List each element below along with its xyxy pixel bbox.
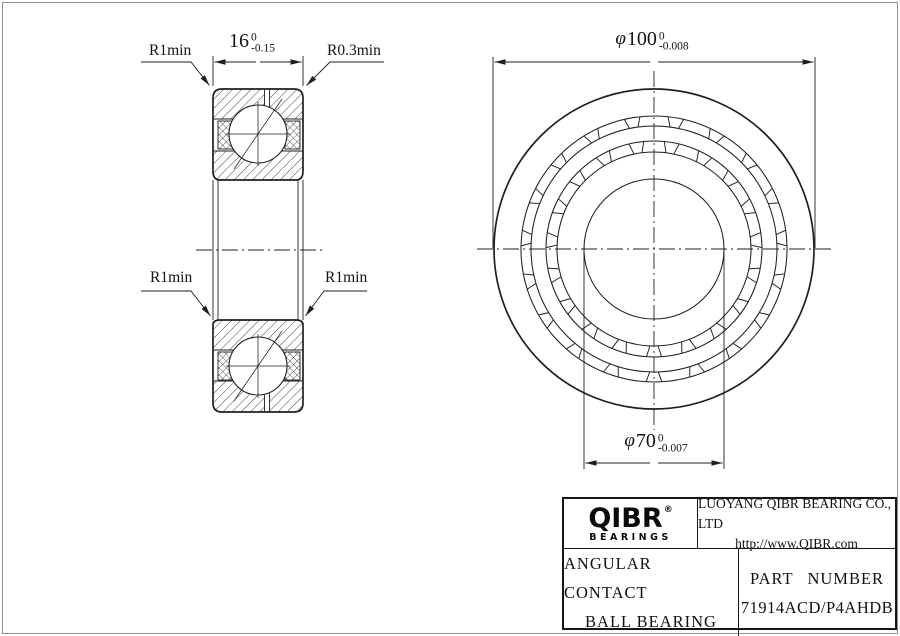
product-cell: ANGULAR CONTACT BALL BEARING [564, 549, 739, 636]
brand-subtitle: BEARINGS [589, 533, 672, 543]
title-block-top-row: QIBR ® BEARINGS LUOYANG QIBR BEARING CO.… [564, 499, 895, 549]
product-type-line2: BALL BEARING [585, 607, 717, 636]
logo-cell: QIBR ® BEARINGS [564, 499, 698, 548]
width-value: 16 [229, 31, 249, 51]
bore-value: 70 [636, 431, 656, 451]
product-type-line1: ANGULAR CONTACT [564, 549, 738, 607]
bearing-upper-section [213, 89, 303, 180]
radius-label-mid-left: R1min [150, 270, 192, 285]
company-name: LUOYANG QIBR BEARING CO., LTD [698, 494, 895, 534]
diameter-symbol: φ [615, 28, 626, 50]
part-number-label: PART NUMBER [750, 564, 884, 593]
title-block: QIBR ® BEARINGS LUOYANG QIBR BEARING CO.… [562, 497, 897, 630]
bore-dimension-text: φ 70 0 -0.007 [624, 430, 687, 452]
brand-logo: QIBR ® [588, 506, 672, 532]
title-block-bottom-row: ANGULAR CONTACT BALL BEARING PART NUMBER… [564, 549, 895, 636]
bearing-lower-section [213, 320, 303, 412]
bore-tolerance: 0 -0.007 [658, 433, 688, 454]
radius-label-top-right: R0.3min [327, 43, 381, 58]
diameter-symbol: φ [624, 430, 635, 452]
od-dimension-text: φ 100 0 -0.008 [615, 28, 688, 50]
od-value: 100 [627, 29, 657, 49]
width-tolerance: 0 -0.15 [251, 33, 275, 54]
part-number-cell: PART NUMBER 71914ACD/P4AHDB [739, 549, 895, 636]
radius-label-top-left: R1min [149, 43, 191, 58]
section-view [141, 56, 384, 412]
front-view-centerlines [477, 71, 832, 430]
part-number-value: 71914ACD/P4AHDB [741, 593, 893, 622]
brand-name: QIBR [588, 506, 662, 532]
width-dimension-text: 16 0 -0.15 [229, 30, 275, 51]
engineering-drawing-page: R1min 16 0 -0.15 R0.3min R1min R1min φ 1… [0, 0, 900, 636]
radius-label-mid-right: R1min [325, 270, 367, 285]
front-view [477, 57, 832, 469]
registered-trademark-icon: ® [664, 506, 673, 515]
width-dimension-lines [213, 56, 303, 86]
company-cell: LUOYANG QIBR BEARING CO., LTD http://www… [698, 499, 895, 548]
od-tolerance: 0 -0.008 [659, 31, 689, 52]
